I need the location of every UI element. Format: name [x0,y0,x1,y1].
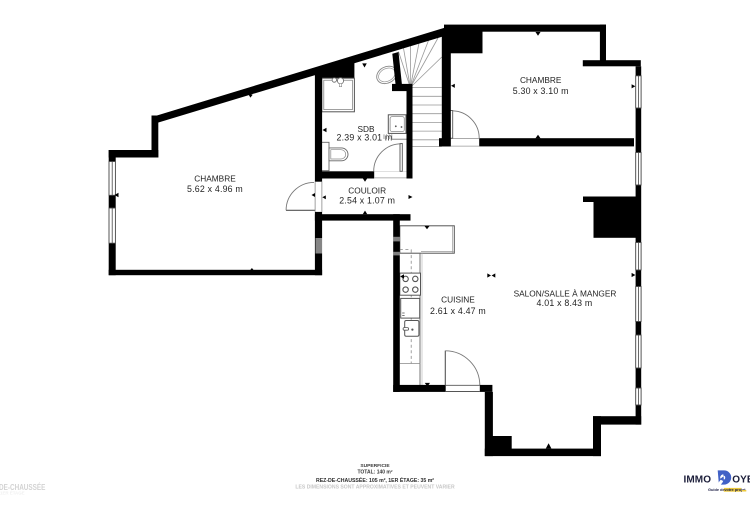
svg-text:SUPERFICIE: SUPERFICIE [360,463,390,469]
svg-text:CUISINE: CUISINE [441,295,475,305]
svg-text:COULOIR: COULOIR [348,185,386,195]
svg-text:LES DIMENSIONS SONT APPROXIMAT: LES DIMENSIONS SONT APPROXIMATIVES ET PE… [295,485,455,491]
svg-text:5.62 x 4.96 m: 5.62 x 4.96 m [187,184,243,194]
svg-text:2.54 x 1.07 m: 2.54 x 1.07 m [339,196,395,206]
svg-text:REZ-DE-CHAUSSÉE: 105 m², 1ER É: REZ-DE-CHAUSSÉE: 105 m², 1ER ÉTAGE: 35 m… [316,476,434,484]
svg-text:1ER ÉTAGE: 1ER ÉTAGE [0,491,25,496]
svg-text:Guide de: Guide de [708,487,725,492]
svg-text:2.61 x 4.47 m: 2.61 x 4.47 m [430,306,486,316]
svg-text:CHAMBRE: CHAMBRE [520,75,562,85]
svg-text:5.30 x 3.10 m: 5.30 x 3.10 m [513,86,569,96]
svg-text:OYEN: OYEN [732,475,750,486]
svg-text:4.01 x 8.43 m: 4.01 x 8.43 m [537,298,593,308]
svg-text:CHAMBRE: CHAMBRE [194,174,236,184]
svg-text:TOTAL: 140 m²: TOTAL: 140 m² [357,470,392,476]
svg-text:IMMO: IMMO [684,475,712,486]
